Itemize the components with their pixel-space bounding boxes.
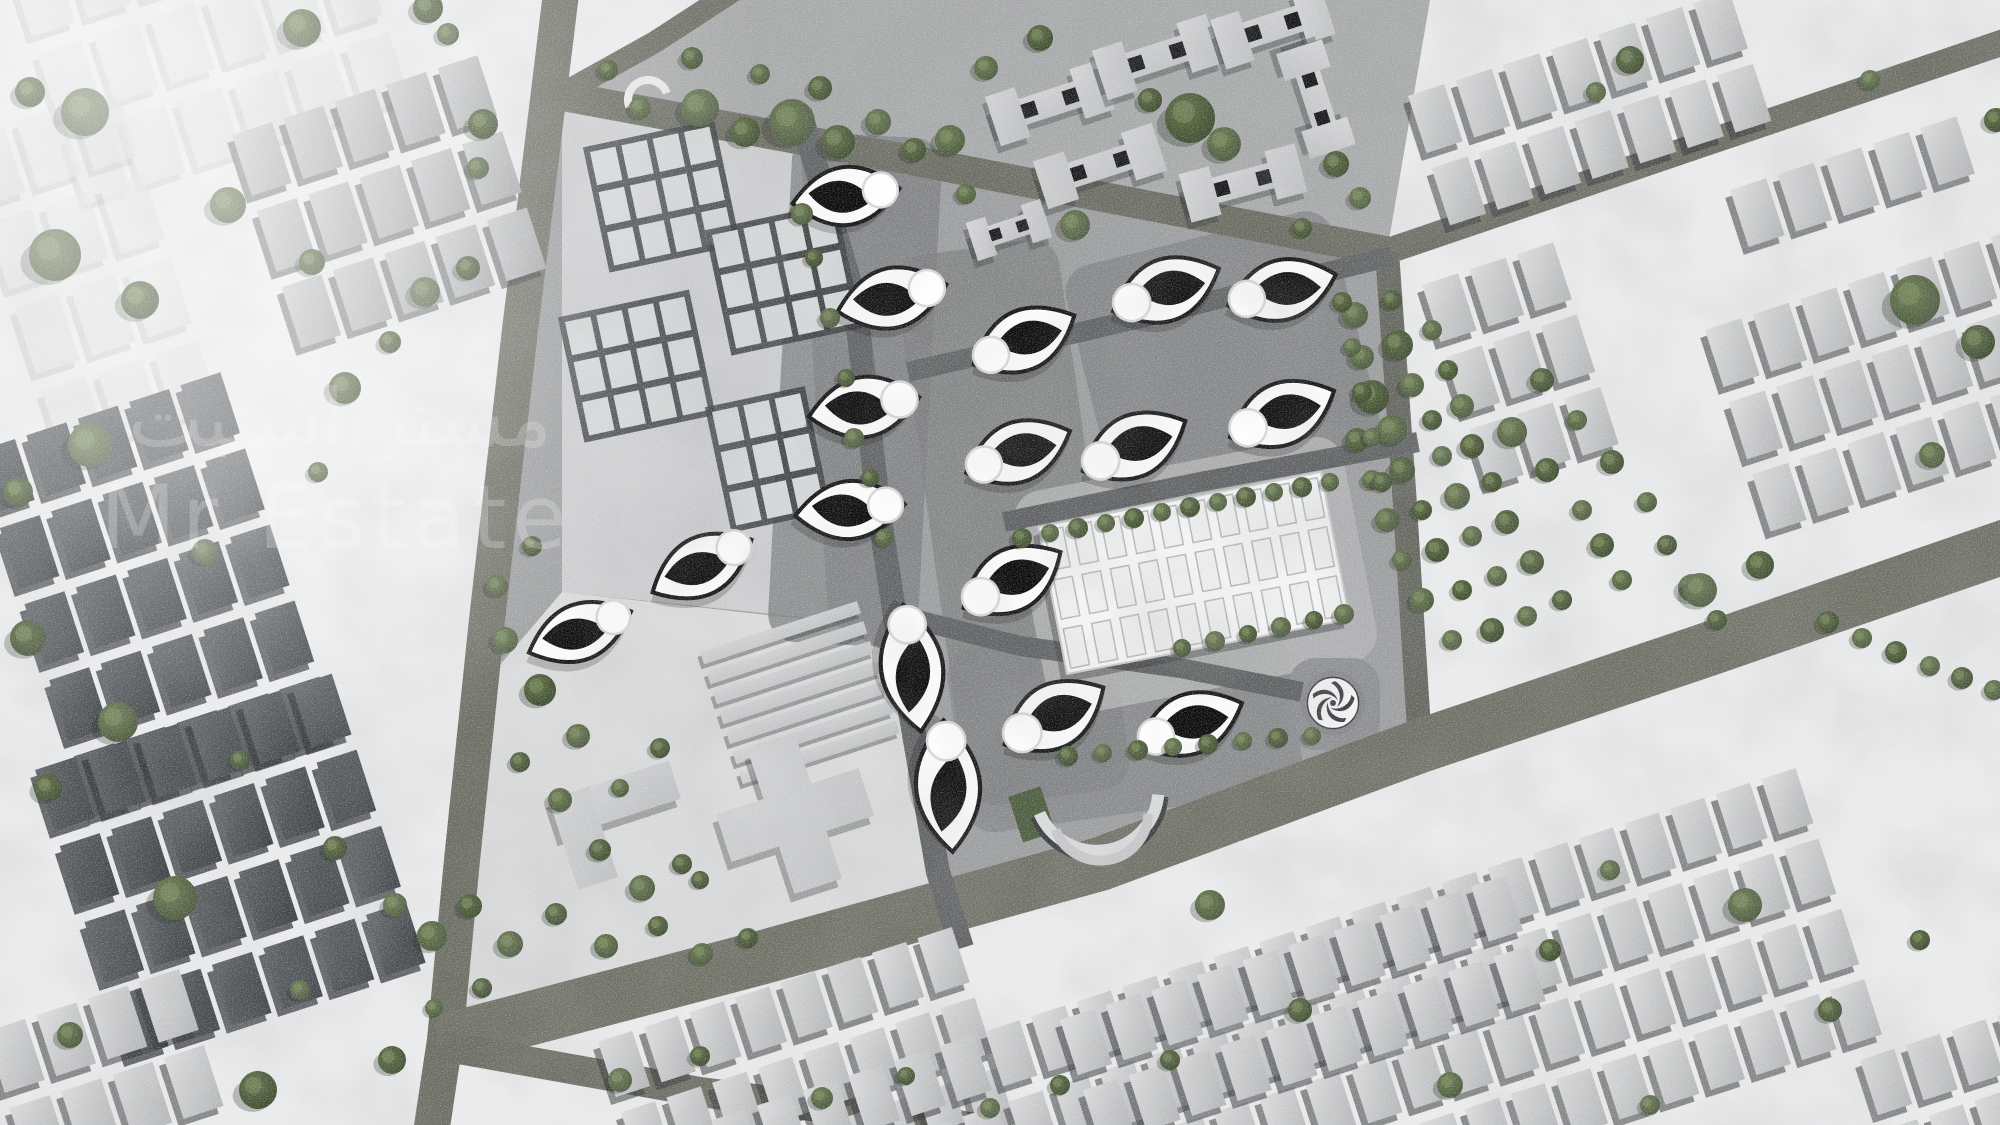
tree-highlight <box>1382 420 1396 434</box>
tree-highlight <box>1555 593 1564 602</box>
tree-highlight <box>878 532 886 540</box>
tree-highlight <box>552 792 563 803</box>
tree-highlight <box>1352 190 1362 200</box>
tree-highlight <box>1575 503 1584 512</box>
tree-highlight <box>1201 737 1210 746</box>
tree-highlight <box>653 741 662 750</box>
tree-highlight <box>1534 372 1545 383</box>
tree-highlight <box>1820 614 1830 624</box>
tree-highlight <box>1355 385 1364 394</box>
tree-highlight <box>1454 398 1465 409</box>
tree-highlight <box>612 1072 623 1083</box>
tree-highlight <box>694 946 704 956</box>
tree-highlight <box>1292 1002 1303 1013</box>
tree-highlight <box>864 472 872 480</box>
spiral-pavilion <box>1301 671 1365 735</box>
tree-highlight <box>1604 454 1615 465</box>
tree-highlight <box>812 80 823 91</box>
tree-highlight <box>1242 628 1250 636</box>
tree-highlight <box>1988 112 1999 123</box>
tree-highlight <box>1542 942 1552 952</box>
tree-highlight <box>693 1049 702 1058</box>
tree-highlight <box>1898 283 1921 306</box>
tree-highlight <box>776 106 797 127</box>
spiral-hub <box>1330 700 1336 706</box>
tree-highlight <box>1640 495 1649 504</box>
tree-highlight <box>840 372 848 380</box>
tree-highlight <box>1131 743 1140 752</box>
tree-highlight <box>651 919 660 928</box>
tree-highlight <box>1385 293 1394 302</box>
tree-highlight <box>1520 609 1529 618</box>
tree-highlight <box>823 311 832 320</box>
tree-highlight <box>293 983 302 992</box>
tree-highlight <box>382 1050 395 1063</box>
tree-highlight <box>1295 221 1304 230</box>
tree-highlight <box>1176 642 1184 650</box>
tree-highlight <box>1688 578 1703 593</box>
tree-highlight <box>1570 413 1579 422</box>
tree-highlight <box>1524 554 1535 565</box>
masterplan-render: مستر استيت Mr Estate <box>0 0 2000 1125</box>
tree-highlight <box>1863 73 1872 82</box>
tree-highlight <box>1200 895 1214 909</box>
tree-highlight <box>869 113 881 125</box>
tree-highlight <box>1499 514 1510 525</box>
tree-highlight <box>1448 487 1460 499</box>
tree-highlight <box>1366 431 1374 439</box>
tree-highlight <box>1435 449 1444 458</box>
tree-highlight <box>1212 132 1227 147</box>
tree-highlight <box>1295 480 1304 489</box>
tree-highlight <box>1966 330 1981 345</box>
tree-highlight <box>1484 622 1495 633</box>
tree-highlight <box>1733 893 1748 908</box>
tree-highlight <box>387 897 398 908</box>
aerial-site-plan: مستر استيت Mr Estate <box>0 0 2000 1125</box>
tree-highlight <box>1346 341 1354 349</box>
tree-highlight <box>38 778 51 791</box>
watermark-line-latin: Mr Estate <box>100 466 573 569</box>
watermark-line-arabic: مستر استيت <box>128 372 552 466</box>
tree-highlight <box>1142 92 1153 103</box>
tree-highlight <box>1208 634 1217 643</box>
tree-highlight <box>1156 506 1164 514</box>
tree-highlight <box>1097 747 1105 755</box>
tree-highlight <box>1643 1098 1652 1107</box>
tree-highlight <box>978 60 989 71</box>
tree-highlight <box>1594 537 1605 548</box>
watermark: مستر استيت Mr Estate <box>100 372 573 569</box>
tree-highlight <box>1395 553 1404 562</box>
tree-highlight <box>1441 363 1450 372</box>
tree-highlight <box>1053 1078 1062 1087</box>
tree-highlight <box>1393 461 1405 473</box>
tree-highlight <box>428 1002 436 1010</box>
tree-highlight <box>1335 295 1344 304</box>
tree-highlight <box>462 898 473 909</box>
tree-highlight <box>1429 542 1440 553</box>
tree-highlight <box>1425 413 1434 422</box>
tree-highlight <box>61 1026 73 1038</box>
tree-highlight <box>1388 335 1402 349</box>
tree-highlight <box>592 842 602 852</box>
tree-highlight <box>1308 614 1316 622</box>
tree-highlight <box>1465 529 1474 538</box>
tree-highlight <box>959 187 968 196</box>
tree-highlight <box>814 1090 824 1100</box>
tree-highlight <box>598 938 609 949</box>
tree-highlight <box>1589 85 1598 94</box>
tree-highlight <box>1710 613 1719 622</box>
tree-highlight <box>614 782 622 790</box>
tree-highlight <box>983 1101 992 1110</box>
tree-highlight <box>513 755 522 764</box>
tree-highlight <box>1349 432 1360 443</box>
tree-highlight <box>1327 155 1339 167</box>
tree-highlight <box>1750 555 1763 568</box>
tree-highlight <box>826 130 841 145</box>
tree-highlight <box>1425 323 1434 332</box>
tree-highlight <box>548 906 558 916</box>
tree-highlight <box>1888 644 1898 654</box>
tree-highlight <box>1379 512 1390 523</box>
tree-highlight <box>1065 215 1079 229</box>
tree-highlight <box>694 874 702 882</box>
tree-highlight <box>741 931 750 940</box>
tree-highlight <box>1987 683 1996 692</box>
tree-highlight <box>1237 735 1245 743</box>
tree-highlight <box>633 879 645 891</box>
tree-highlight <box>422 926 436 940</box>
tree-highlight <box>1822 1002 1833 1013</box>
tree-highlight <box>1044 527 1052 535</box>
tree-highlight <box>1445 633 1454 642</box>
tree-highlight <box>940 130 954 144</box>
tree-highlight <box>501 935 513 947</box>
tree-highlight <box>794 206 804 216</box>
tree-highlight <box>475 981 484 990</box>
tree-highlight <box>1455 583 1464 592</box>
tree-highlight <box>1183 500 1192 509</box>
tree-highlight <box>847 431 856 440</box>
lens-dome <box>926 721 967 762</box>
tree-highlight <box>1127 511 1136 520</box>
tree-highlight <box>1163 1053 1172 1062</box>
tree-highlight <box>1441 1076 1453 1088</box>
tree-highlight <box>1490 569 1499 578</box>
tree-highlight <box>1415 503 1424 512</box>
tree-highlight <box>1306 730 1314 738</box>
tree-highlight <box>1464 438 1475 449</box>
tree-highlight <box>1031 29 1043 41</box>
tree-highlight <box>1324 476 1332 484</box>
tree-highlight <box>675 857 684 866</box>
tree-highlight <box>1239 490 1248 499</box>
tree-highlight <box>1923 446 1935 458</box>
tree-highlight <box>1404 377 1415 388</box>
tree-highlight <box>160 883 180 903</box>
tree-highlight <box>1414 592 1425 603</box>
tree-highlight <box>1502 422 1516 436</box>
tree-highlight <box>1274 620 1283 629</box>
tree-highlight <box>1615 573 1624 582</box>
tree-highlight <box>906 142 917 153</box>
tree-highlight <box>1100 517 1108 525</box>
tree-highlight <box>1061 749 1070 758</box>
tree-highlight <box>1485 475 1494 484</box>
tree-highlight <box>1855 631 1864 640</box>
tree-highlight <box>1954 670 1964 680</box>
tree-highlight <box>1620 50 1633 63</box>
tree-highlight <box>900 1070 908 1078</box>
tree-highlight <box>1167 741 1175 749</box>
tree-highlight <box>1375 475 1384 484</box>
tree-highlight <box>1660 538 1669 547</box>
tree-highlight <box>1015 531 1024 540</box>
tree-highlight <box>245 1077 262 1094</box>
tree-highlight <box>1212 496 1220 504</box>
tree-highlight <box>1913 933 1922 942</box>
tree-highlight <box>1539 462 1550 473</box>
tree-highlight <box>1173 101 1196 124</box>
tree-highlight <box>1271 731 1280 740</box>
tree-highlight <box>570 728 581 739</box>
tree-highlight <box>1337 607 1346 616</box>
tree-highlight <box>1923 659 1932 668</box>
tree-highlight <box>1268 486 1276 494</box>
tree-highlight <box>1071 521 1080 530</box>
tree-highlight <box>808 252 816 260</box>
tree-highlight <box>327 840 338 851</box>
tree-highlight <box>1603 863 1612 872</box>
